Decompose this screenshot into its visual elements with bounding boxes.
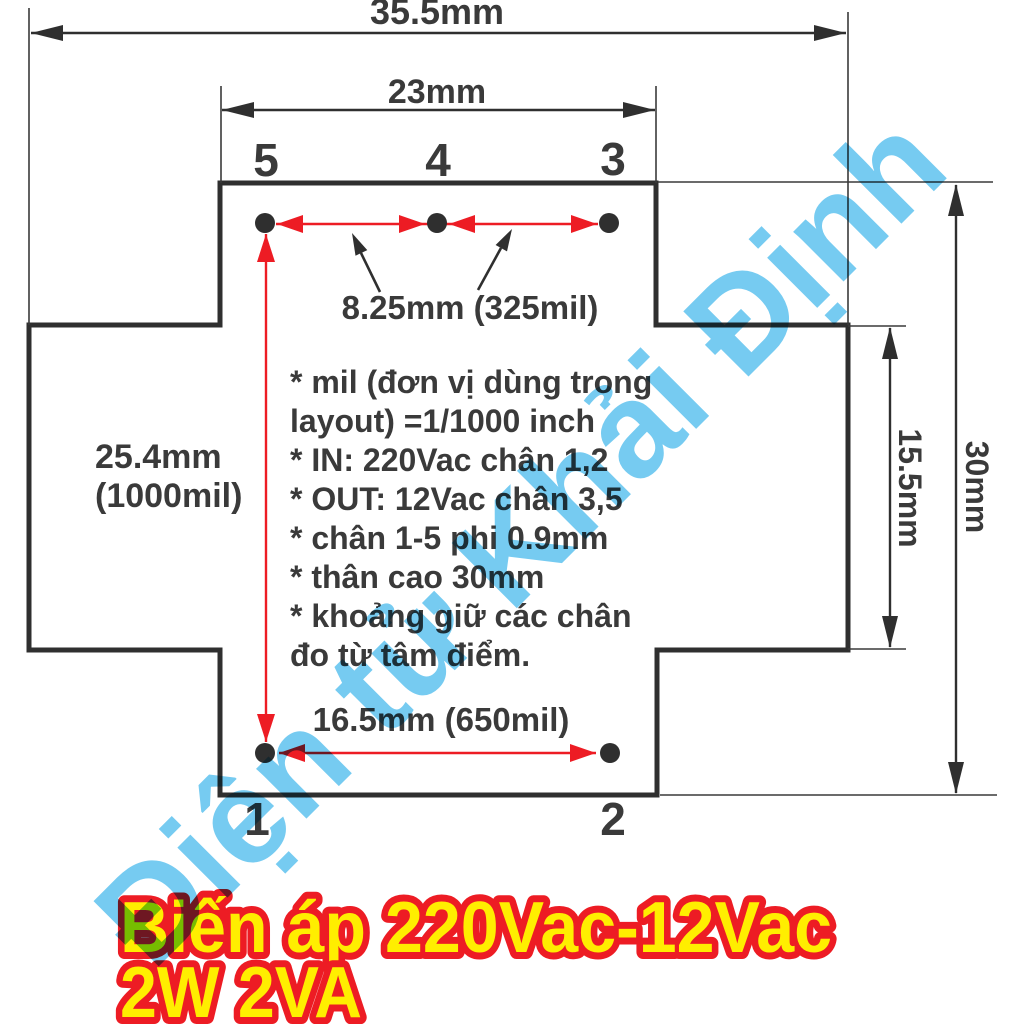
spec-note-line: * OUT: 12Vac chân 3,5 (290, 480, 652, 519)
dim-label-overall-height: 30mm (961, 441, 993, 534)
dim-label-row-spacing: 25.4mm (1000mil) (95, 438, 242, 516)
dim-label-row-spacing-mil: (1000mil) (95, 477, 242, 516)
spec-note-line: * chân 1-5 phi 0.9mm (290, 519, 652, 558)
dim-label-row-spacing-mm: 25.4mm (95, 438, 242, 477)
dim-label-pin-pitch-bottom: 16.5mm (650mil) (313, 703, 570, 736)
pin-label-1: 1 (244, 796, 270, 842)
dim-label-overall-width: 35.5mm (370, 0, 504, 30)
pin-dot-1 (255, 743, 275, 763)
spec-note-line: * khoảng giữ các chân (290, 597, 652, 636)
pin-label-2: 2 (600, 796, 626, 842)
spec-notes: * mil (đơn vị dùng trong layout) =1/1000… (290, 363, 652, 675)
pin-dot-5 (255, 213, 275, 233)
spec-note-line: * IN: 220Vac chân 1,2 (290, 441, 652, 480)
red-row-spacing-arrow (257, 234, 275, 742)
red-pitch-arrow-bottom (279, 744, 596, 762)
pin-label-5: 5 (253, 137, 279, 183)
title-line-2: 2W 2VA (120, 953, 362, 1024)
dim-label-side-height: 15.5mm (894, 428, 926, 547)
pin-dot-4 (427, 213, 447, 233)
spec-note-line: layout) =1/1000 inch (290, 402, 652, 441)
spec-note-line: * thân cao 30mm (290, 558, 652, 597)
pin-label-3: 3 (600, 136, 626, 182)
dim-label-pin-pitch-top: 8.25mm (325mil) (342, 291, 599, 324)
spec-note-line: * mil (đơn vị dùng trong (290, 363, 652, 402)
leader-arrows (352, 229, 512, 292)
pin-label-4: 4 (425, 137, 451, 183)
dim-label-top-width: 23mm (388, 75, 486, 109)
transformer-footprint-diagram: Biến áp 220Vac-12Vac 2W 2VA 35.5mm 23mm … (0, 0, 1024, 1024)
pin-dot-2 (600, 743, 620, 763)
spec-note-line: đo từ tâm điểm. (290, 636, 652, 675)
pin-dot-3 (599, 213, 619, 233)
